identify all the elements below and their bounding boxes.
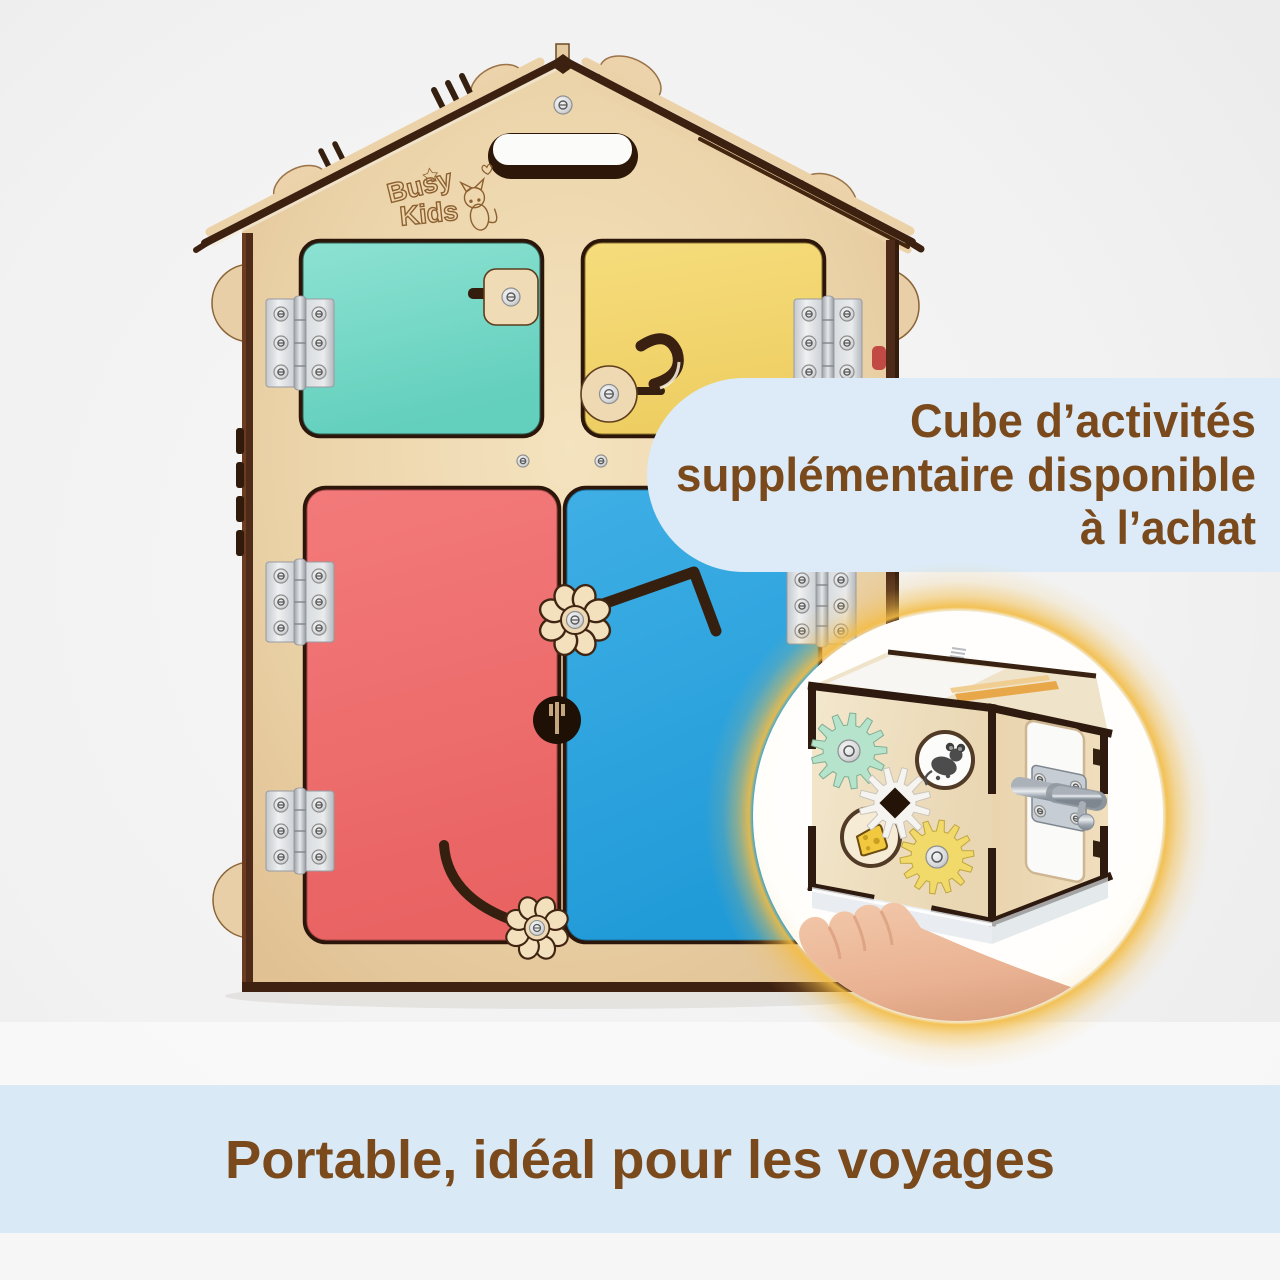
svg-text:Kids: Kids <box>398 196 459 232</box>
svg-text:Portable, idéal pour les voyag: Portable, idéal pour les voyages <box>225 1130 1055 1190</box>
svg-text:à l’achat: à l’achat <box>1080 501 1256 554</box>
svg-text:Cube d’activités: Cube d’activités <box>910 394 1256 447</box>
svg-text:supplémentaire disponible: supplémentaire disponible <box>676 448 1256 501</box>
